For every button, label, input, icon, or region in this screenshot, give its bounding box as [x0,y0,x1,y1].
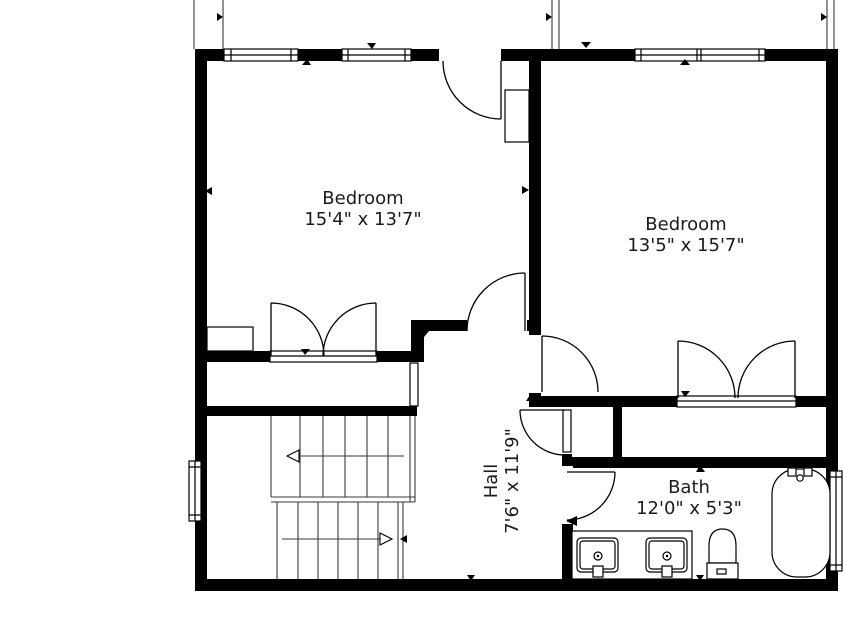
door-bedroom-2 [542,336,598,392]
bedroom2-name: Bedroom [645,214,726,235]
wall-segment [411,320,424,362]
window [189,461,201,521]
wall-segment [195,579,838,591]
wall-segment [562,524,573,579]
vanity [572,531,692,579]
wall-segment [796,396,838,407]
floor-plan-canvas: Bedroom 15'4" x 13'7" Bedroom 13'5" x 15… [0,0,843,632]
door-bedroom-1 [467,273,525,331]
bath-name: Bath [668,477,710,498]
closet-doors-bedroom-1 [270,303,377,362]
bedroom1-dims: 15'4" x 13'7" [304,209,421,230]
wall-segment [195,406,417,416]
staircase [271,416,415,579]
upper-level-wall-lines [194,0,834,49]
window [342,49,411,61]
hall-dims: 7'6" x 11'9" [502,428,523,534]
floor-plan: Bedroom 15'4" x 13'7" Bedroom 13'5" x 15… [0,0,843,632]
stair-direction-arrow-down [282,533,407,545]
bedroom1-name: Bedroom [322,188,403,209]
door-bath [566,472,615,526]
bedroom2-dims: 13'5" x 15'7" [627,235,744,256]
plan-markers [205,42,705,581]
door-top-landing [443,61,501,119]
toilet [707,529,738,579]
closet-end-panel [410,363,418,406]
wall-segment [195,351,271,362]
door-hall-closet [520,410,571,455]
window [224,49,298,61]
hall-name: Hall [481,464,502,499]
chimney [505,90,529,142]
wall-segment [376,351,417,362]
closet-doors-bedroom-2 [677,341,796,407]
bathtub [772,468,830,577]
built-in-cabinet [207,327,253,351]
wall-segment [529,61,541,335]
bath-dims: 12'0" x 5'3" [636,498,742,519]
wall-segment [529,396,677,407]
window [635,49,765,61]
wall-segment [613,407,622,457]
window [830,471,842,571]
wall-segment [527,320,537,331]
